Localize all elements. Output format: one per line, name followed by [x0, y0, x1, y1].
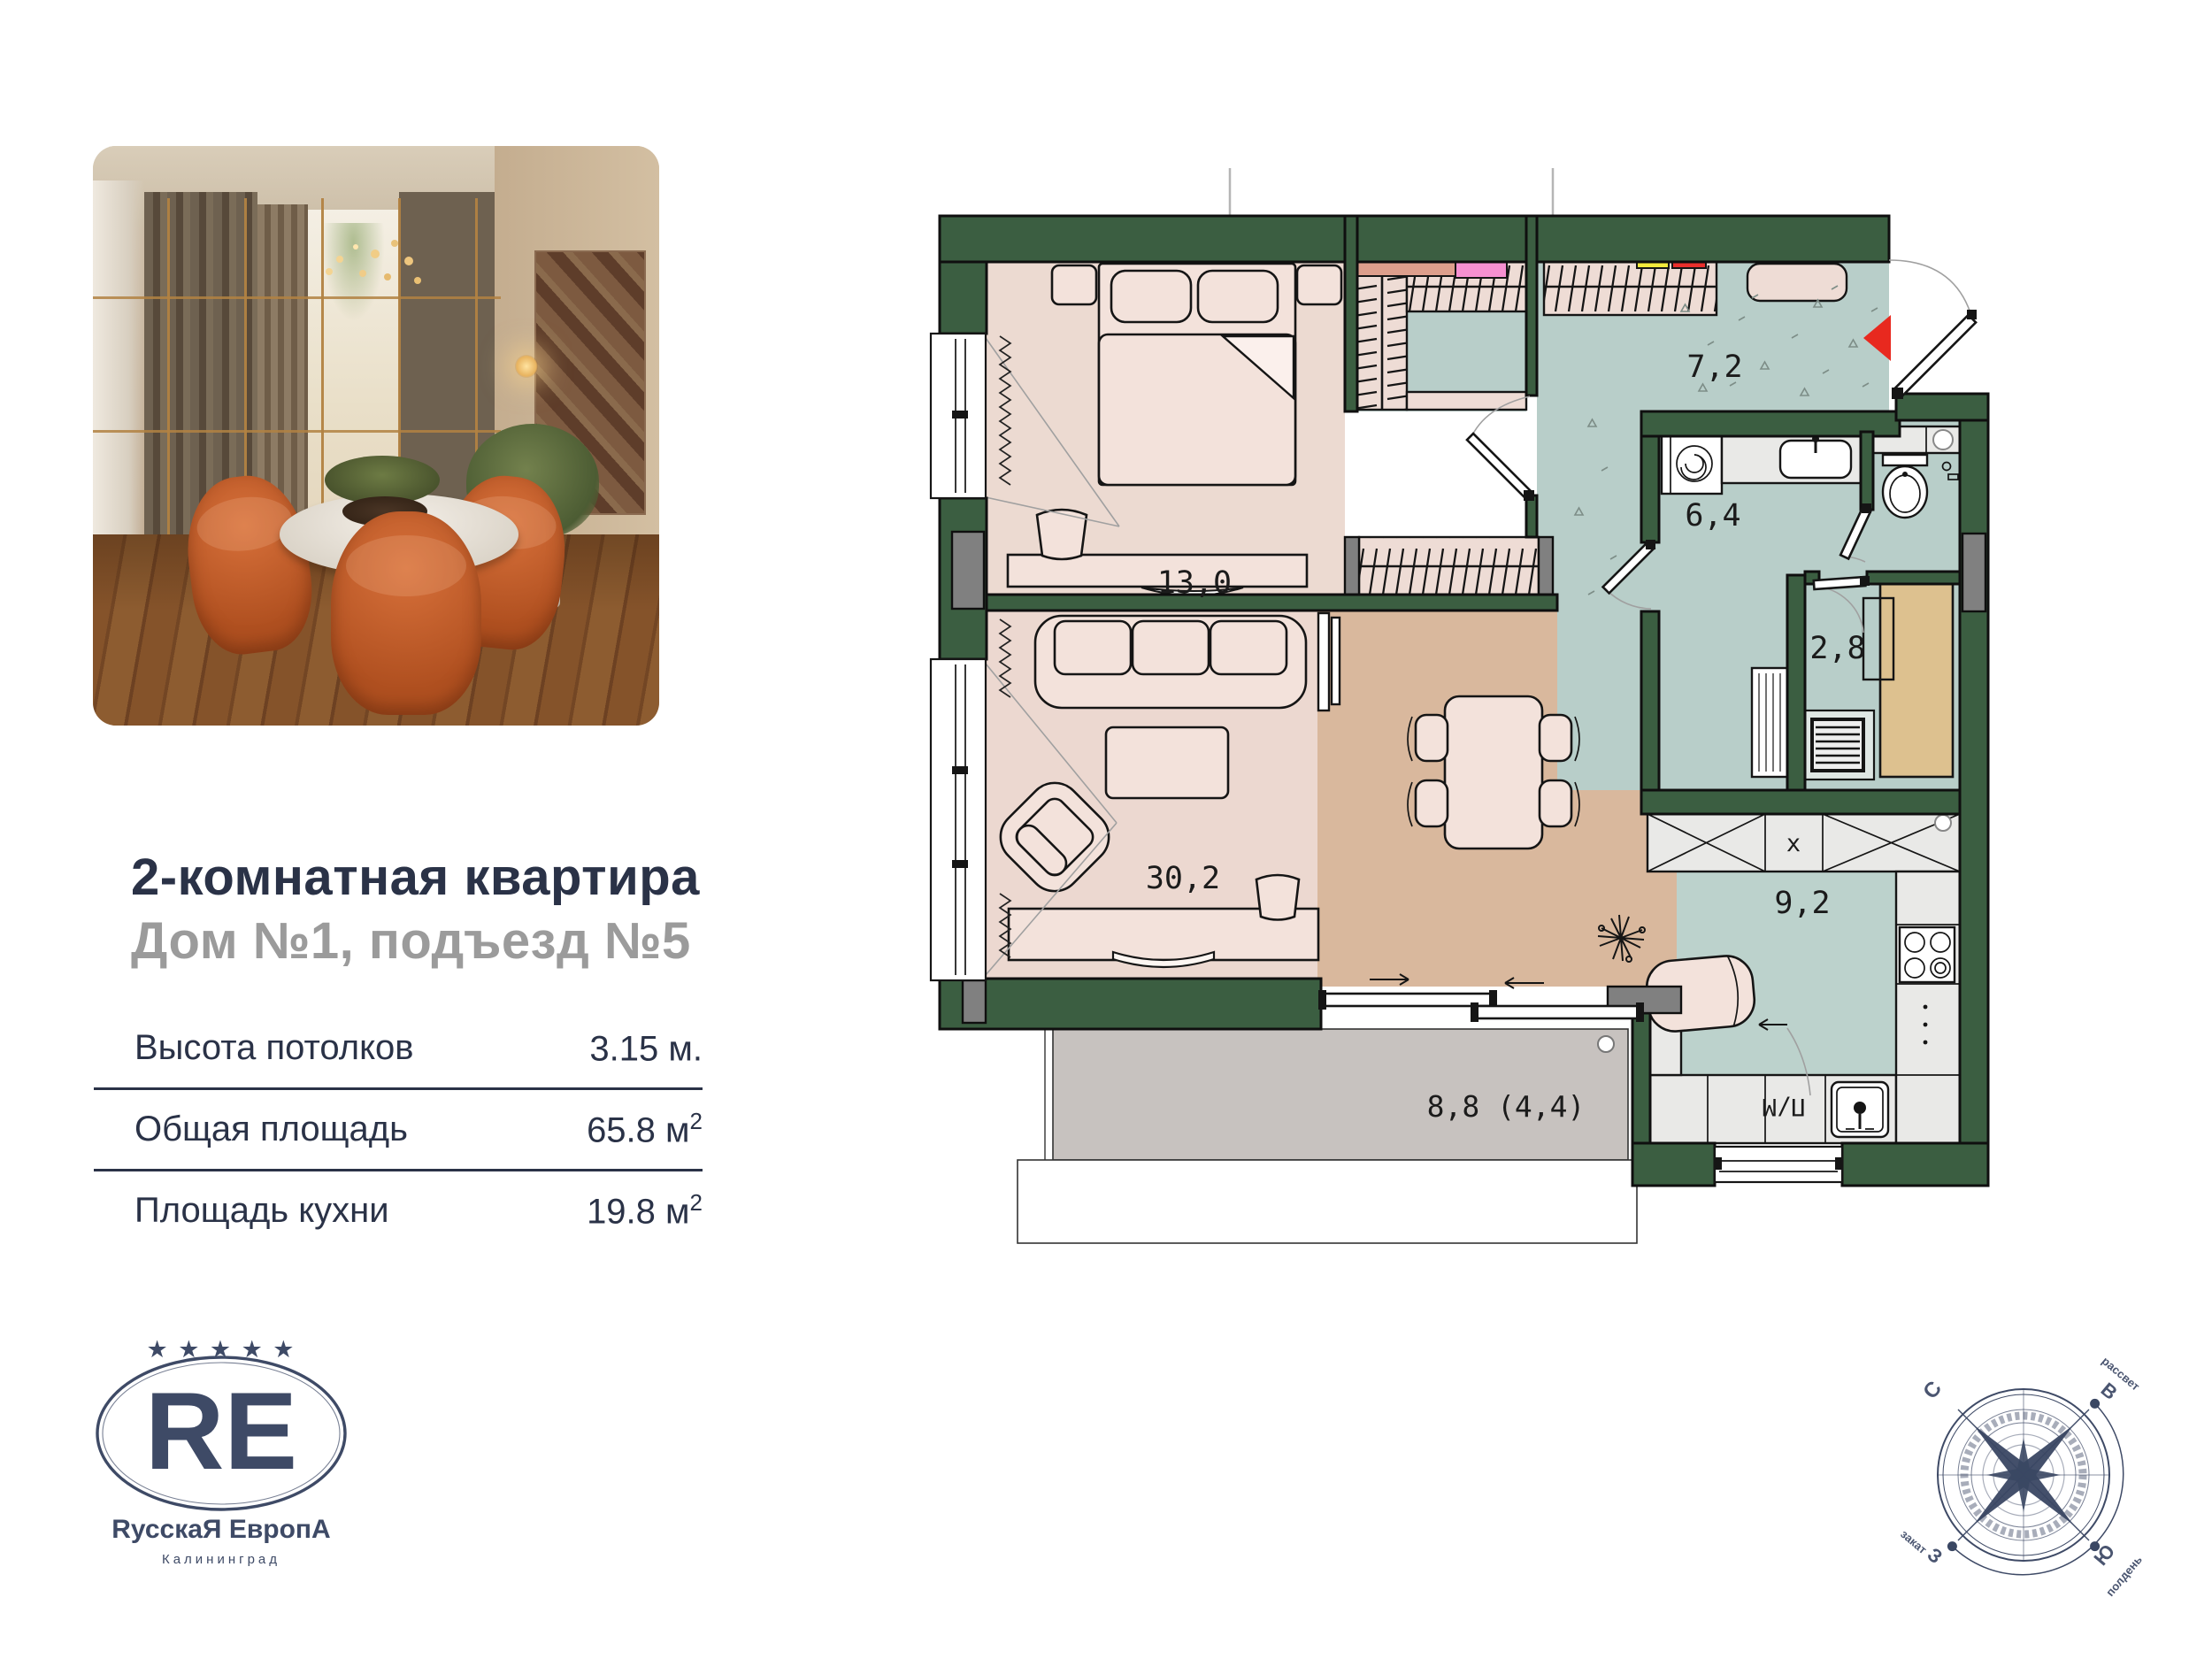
compass-north: С: [1918, 1377, 1947, 1404]
spec-value: 3.15 м.: [589, 1026, 703, 1069]
entry-bench: [1747, 264, 1847, 301]
dining-table: [1445, 696, 1542, 849]
balcony-handle: [1598, 1036, 1614, 1052]
spec-value: 65.8 м2: [587, 1108, 703, 1150]
page-subtitle: Дом №1, подъезд №5: [131, 911, 691, 971]
label-bedroom: 13,0: [1157, 565, 1232, 601]
photo-floor-lamp: [515, 355, 538, 378]
spec-row-total-area: Общая площадь 65.8 м2: [94, 1090, 703, 1171]
shelf-panel: [1332, 618, 1340, 704]
spec-label: Площадь кухни: [94, 1191, 389, 1231]
bedroom-door: [1467, 396, 1534, 501]
pillow: [1198, 271, 1278, 322]
compass-sunset: закат: [1898, 1527, 1929, 1556]
ceiling-light: [1935, 815, 1951, 831]
tall-cabinets: [1896, 872, 1960, 1143]
toilet-tank: [1883, 455, 1927, 465]
logo-stars-icon: ★ ★ ★ ★ ★: [88, 1336, 354, 1363]
sofa-cushion: [1133, 621, 1209, 674]
photo-chair-front: [331, 511, 481, 715]
tall-cabinet: [1752, 668, 1787, 777]
living-window: [931, 659, 986, 980]
page-title: 2-комнатная квартира: [131, 848, 700, 907]
compass-rose: С рассвет В закат З Ю полдень: [1886, 1338, 2161, 1617]
logo-monogram: RE: [88, 1377, 354, 1486]
sofa-cushion: [1055, 621, 1131, 674]
label-balcony: 8,8 (4,4): [1427, 1089, 1586, 1124]
label-living: 30,2: [1146, 861, 1220, 896]
upper-cabinets: [1647, 814, 1960, 872]
compass-east: В: [2097, 1379, 2122, 1404]
side-stool: [1256, 875, 1299, 920]
logo-city: Калининград: [53, 1552, 389, 1567]
bedroom-closet: [1345, 537, 1553, 595]
label-dishwasher: П/М: [1763, 1093, 1806, 1120]
coffee-table: [1106, 727, 1228, 798]
shelf-panel: [1318, 613, 1329, 710]
sofa-cushion: [1210, 621, 1286, 674]
spec-table: Высота потолков 3.15 м. Общая площадь 65…: [94, 1009, 703, 1250]
balcony: [1018, 1029, 1637, 1243]
label-vent: х: [1786, 830, 1801, 857]
spec-label: Общая площадь: [94, 1110, 408, 1149]
label-kitchen: 9,2: [1774, 886, 1830, 921]
label-storage: 2,8: [1809, 631, 1865, 666]
spec-label: Высота потолков: [94, 1028, 414, 1068]
spec-row-ceiling-height: Высота потолков 3.15 м.: [94, 1009, 703, 1090]
pillow: [1111, 271, 1191, 322]
nook-shelf: [1407, 392, 1526, 410]
logo-company-name: RусскаЯ ЕвропА: [53, 1515, 389, 1545]
floor-plan: 13,0 30,2 7,2 6,4 2,8 9,2 8,8 (4,4) П/М …: [929, 168, 1991, 1252]
label-bathroom: 6,4: [1685, 498, 1740, 534]
spec-value: 19.8 м2: [587, 1189, 703, 1232]
apartment-photo: [93, 146, 659, 726]
nightstand-right: [1297, 265, 1341, 304]
label-hallway: 7,2: [1686, 349, 1742, 385]
axis-lines: [1230, 168, 1553, 216]
terrace-apron: [1018, 1160, 1637, 1243]
nightstand-left: [1052, 265, 1096, 304]
kitchen-window: [1715, 1147, 1842, 1182]
spec-row-kitchen-area: Площадь кухни 19.8 м2: [94, 1171, 703, 1250]
